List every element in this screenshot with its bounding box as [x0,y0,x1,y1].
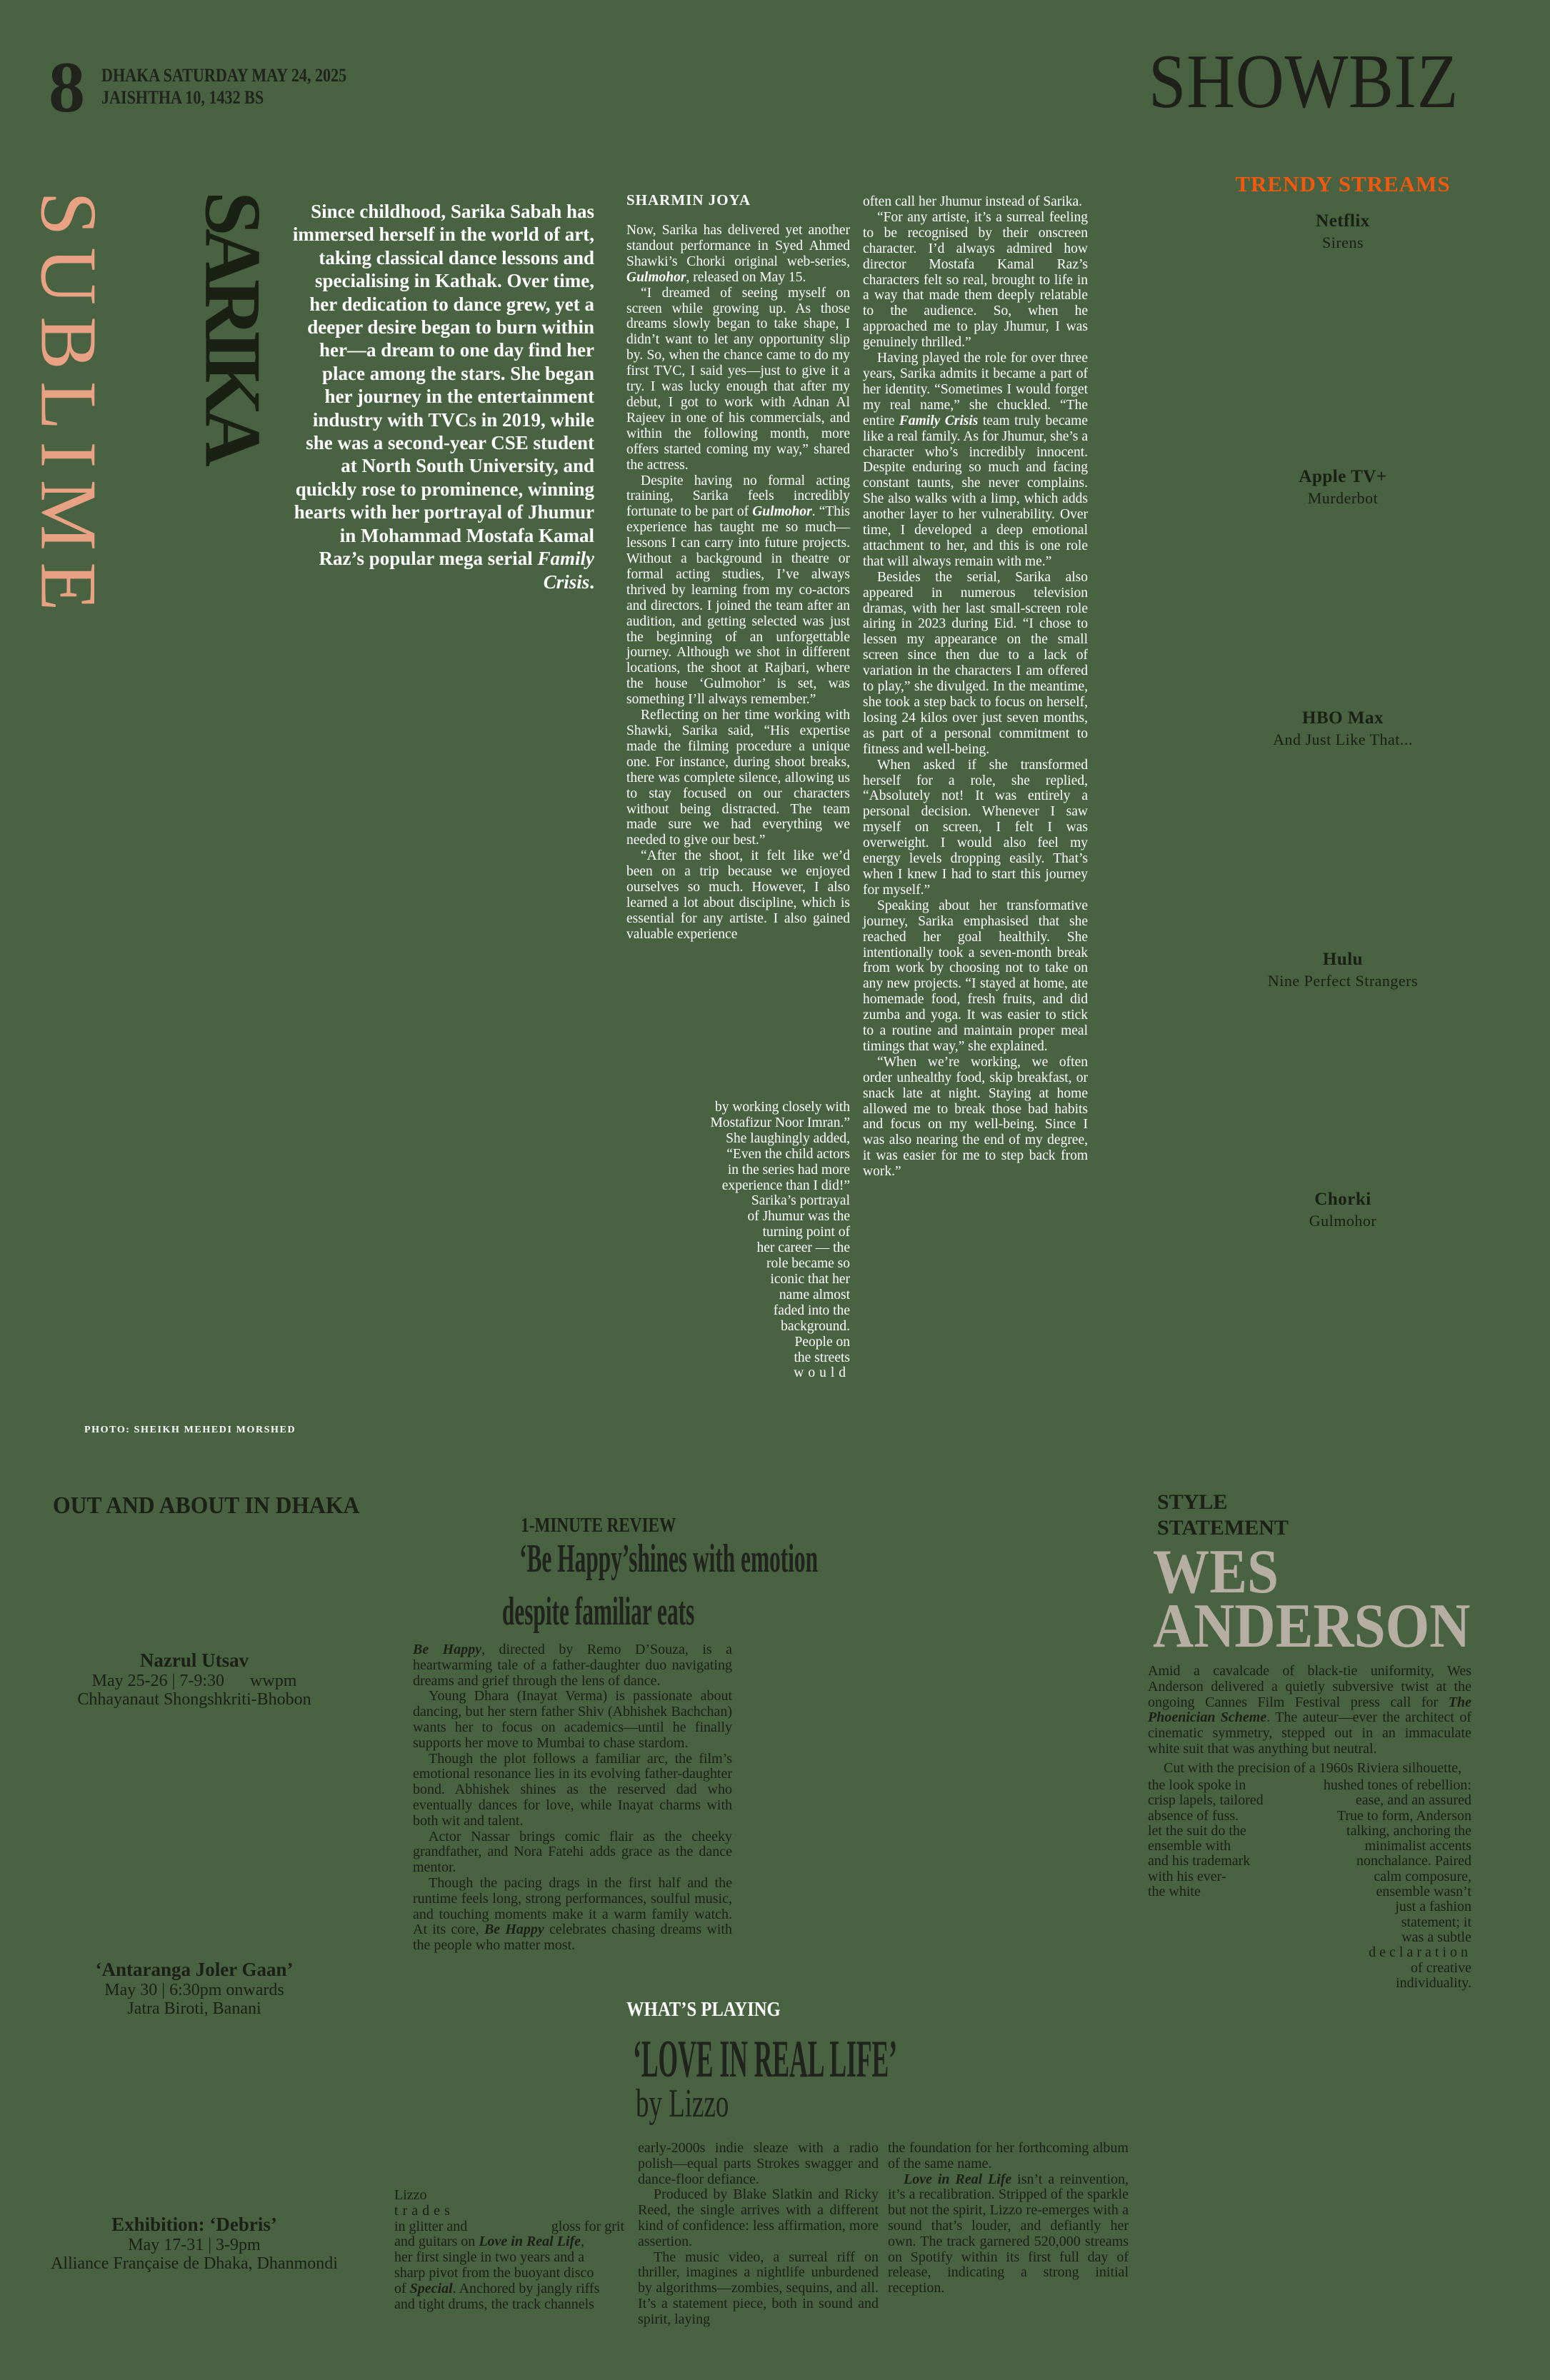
wes-wrap-line: calm composure, [1296,1869,1471,1884]
stream-platform: Apple TV+ [1171,466,1514,488]
article-paragraph: Having played the role for over three ye… [863,351,1088,570]
stream-item: Apple TV+Murderbot [1171,466,1514,508]
wes-wrap-right-column: hushed tones of rebellion:ease, and an a… [1296,1778,1471,1991]
lizzo-column-1: early-2000s indie sleaze with a radio po… [638,2141,879,2328]
wes-wrap-line: True to form, Anderson [1296,1809,1471,1824]
taper-line: experience than I did!” [626,1178,850,1194]
events-list: Nazrul UtsavMay 25-26 | 7-9:30 wwpmChhay… [44,0,344,2380]
lizzo-intro-column: Lizzotradesin glitter andgloss for grita… [394,2188,624,2312]
event-name: Exhibition: ‘Debris’ [44,2214,344,2236]
taper-line: Mostafizur Noor Imran.” [626,1115,850,1131]
taper-line: faded into the [626,1303,850,1319]
song-byline: by Lizzo [636,2084,776,2134]
lizzo-intro-line: sharp pivot from the buoyant disco [394,2266,624,2281]
review-kicker: 1-MINUTE REVIEW [521,1514,676,1537]
taper-line: her career — the [626,1240,850,1256]
lizzo-intro-line: of Special. Anchored by jangly riffs [394,2281,624,2297]
wes-wrap-line: minimalist accents [1296,1839,1471,1854]
article-paragraph: “I dreamed of seeing myself on screen wh… [626,286,850,473]
wes-wrap-line: let the suit do the [1148,1824,1280,1839]
wes-wrap-line: crisp lapels, tailored [1148,1793,1280,1808]
event-when: May 25-26 | 7-9:30 wwpm [44,1672,344,1690]
lizzo-intro-line: her first single in two years and a [394,2250,624,2266]
article-column-1-taper: by working closely withMostafizur Noor I… [626,1100,850,1381]
taper-line: She laughingly added, [626,1131,850,1147]
style-statement-kicker-line1: STYLE [1157,1490,1289,1515]
lizzo-intro-line: and tight drums, the track channels [394,2297,624,2313]
taper-line: iconic that her [626,1272,850,1287]
review-headline-line2: despite familiar eats [402,1590,795,1643]
wes-wrap-line: talking, anchoring the [1296,1824,1471,1839]
wes-wrap-line: nonchalance. Paired [1296,1854,1471,1869]
stream-show: Nine Perfect Strangers [1171,970,1514,991]
taper-line: role became so [626,1256,850,1272]
event-name: ‘Antaranga Joler Gaan’ [44,1959,344,1981]
lizzo-intro-line: trades [394,2204,624,2219]
lizzo-paragraph: Love in Real Life isn’t a reinvention, i… [888,2172,1129,2296]
wes-wrap-line: hushed tones of rebellion: [1296,1778,1471,1793]
review-headline-line1: ‘Be Happy’shines with emotion [402,1537,795,1590]
review-paragraph: Be Happy, directed by Remo D’Souza, is a… [413,1642,732,1689]
stream-platform: Netflix [1171,210,1514,232]
style-statement-kicker: STYLE STATEMENT [1157,1490,1289,1541]
review-paragraph: Though the plot follows a familiar arc, … [413,1752,732,1829]
taper-line: in the series had more [626,1163,850,1178]
wes-wrap-line: ensemble with [1148,1839,1280,1854]
stream-show: And Just Like That... [1171,729,1514,750]
review-paragraph: Though the pacing drags in the first hal… [413,1876,732,1954]
article-paragraph: Speaking about her transformative journe… [863,898,1088,1055]
wes-wrap-left-column: the look spoke incrisp lapels, tailoreda… [1148,1778,1280,1899]
newspaper-page: { "colors": { "background": "#486242", "… [0,0,1550,2380]
stream-platform: Hulu [1171,948,1514,970]
article-paragraph: “When we’re working, we often order unhe… [863,1055,1088,1180]
review-body: Be Happy, directed by Remo D’Souza, is a… [413,1642,732,1954]
lizzo-intro-line: in glitter andgloss for grit [394,2219,624,2235]
wes-wrap-full-line: Cut with the precision of a 1960s Rivier… [1148,1761,1471,1777]
review-header: 1-MINUTE REVIEW ‘Be Happy’shines with em… [402,1514,795,1643]
review-paragraph: Young Dhara (Inayat Verma) is passionate… [413,1689,732,1751]
event-item: Nazrul UtsavMay 25-26 | 7-9:30 wwpmChhay… [44,1650,344,1709]
wes-wrap-line: ensemble wasn’t [1296,1884,1471,1899]
article-paragraph: Reflecting on her time working with Shaw… [626,708,850,848]
event-when: May 30 | 6:30pm onwards [44,1981,344,1999]
stream-item: HuluNine Perfect Strangers [1171,948,1514,991]
event-where: Jatra Biroti, Banani [44,1999,344,2018]
wes-wrap-line: ease, and an assured [1296,1793,1471,1808]
event-where: Chhayanaut Shongshkriti-Bhobon [44,1690,344,1709]
wes-wrap-line: was a subtle [1296,1930,1471,1945]
stream-item: HBO MaxAnd Just Like That... [1171,707,1514,750]
song-byline-text: by Lizzo [636,2084,729,2124]
wes-wrap-line: of creative [1296,1961,1471,1976]
lizzo-paragraph: The music video, a surreal riff on thril… [638,2250,879,2328]
event-where: Alliance Française de Dhaka, Dhanmondi [44,2254,344,2273]
taper-line: Sarika’s portrayal [626,1193,850,1209]
article-column-1: Now, Sarika has delivered yet another st… [626,223,850,943]
wes-wrap-line: individuality. [1296,1976,1471,1991]
stream-platform: Chorki [1171,1188,1514,1210]
lizzo-column-2: the foundation for her forthcoming album… [888,2141,1129,2296]
taper-line: would [626,1365,850,1381]
review-headline-text1: ‘Be Happy’shines with emotion [519,1537,818,1581]
taper-line: background. [626,1319,850,1335]
wes-anderson-headline: WES ANDERSON [1153,1545,1506,1654]
article-paragraph: Despite having no formal acting training… [626,473,850,708]
event-name: Nazrul Utsav [44,1650,344,1672]
stream-show: Murderbot [1171,488,1514,508]
wes-wrap-line: the white [1148,1884,1280,1899]
taper-line: name almost [626,1287,850,1303]
stream-item: ChorkiGulmohor [1171,1188,1514,1231]
article-paragraph: When asked if she transformed herself fo… [863,758,1088,898]
taper-line: of Jhumur was the [626,1209,850,1225]
review-paragraph: Actor Nassar brings comic flair as the c… [413,1829,732,1876]
wes-wrap-line: the look spoke in [1148,1778,1280,1793]
lizzo-intro-line: Lizzo [394,2188,624,2204]
taper-line: the streets [626,1350,850,1366]
stream-platform: HBO Max [1171,707,1514,729]
article-paragraph: often call her Jhumur instead of Sarika. [863,194,1088,210]
wes-wrap-line: statement; it [1296,1915,1471,1930]
song-title-text: ‘LOVE IN REAL LIFE’ [633,2037,897,2082]
lizzo-paragraph: early-2000s indie sleaze with a radio po… [638,2141,879,2187]
review-headline-text2: despite familiar eats [502,1590,694,1634]
taper-line: turning point of [626,1225,850,1240]
article-paragraph: Besides the serial, Sarika also appeared… [863,570,1088,758]
lizzo-paragraph: the foundation for her forthcoming album… [888,2141,1129,2172]
lizzo-paragraph: Produced by Blake Slatkin and Ricky Reed… [638,2187,879,2249]
wes-wrap-line: declaration [1296,1945,1471,1960]
wes-wrap-line: with his ever- [1148,1869,1280,1884]
article-paragraph: “After the shoot, it felt like we’d been… [626,848,850,942]
wes-paragraph: Amid a cavalcade of black-tie uniformity… [1148,1664,1471,1757]
taper-line: People on [626,1335,850,1350]
article-paragraph: “For any artiste, it’s a surreal feeling… [863,210,1088,351]
stream-show: Sirens [1171,232,1514,253]
byline: SHARMIN JOYA [626,191,751,209]
article-paragraph: Now, Sarika has delivered yet another st… [626,223,850,286]
wes-wrap-line: absence of fuss. [1148,1809,1280,1824]
wes-wrap-line: just a fashion [1296,1899,1471,1914]
event-item: ‘Antaranga Joler Gaan’May 30 | 6:30pm on… [44,1959,344,2018]
event-when: May 17-31 | 3-9pm [44,2236,344,2254]
article-column-2: often call her Jhumur instead of Sarika.… [863,194,1088,1180]
taper-line: “Even the child actors [626,1147,850,1163]
wes-body: Amid a cavalcade of black-tie uniformity… [1148,1664,1471,1757]
stream-show: Gulmohor [1171,1210,1514,1231]
taper-line: by working closely with [626,1100,850,1115]
wes-wrap-line: and his trademark [1148,1854,1280,1869]
wes-headline-line2: ANDERSON [1153,1600,1470,1654]
trendy-streams-list: NetflixSirensApple TV+MurderbotHBO MaxAn… [1171,0,1514,2380]
event-item: Exhibition: ‘Debris’May 17-31 | 3-9pmAll… [44,2214,344,2273]
whats-playing-kicker: WHAT’S PLAYING [626,1998,781,2022]
stream-item: NetflixSirens [1171,210,1514,253]
lizzo-intro-line: and guitars on Love in Real Life, [394,2234,624,2250]
